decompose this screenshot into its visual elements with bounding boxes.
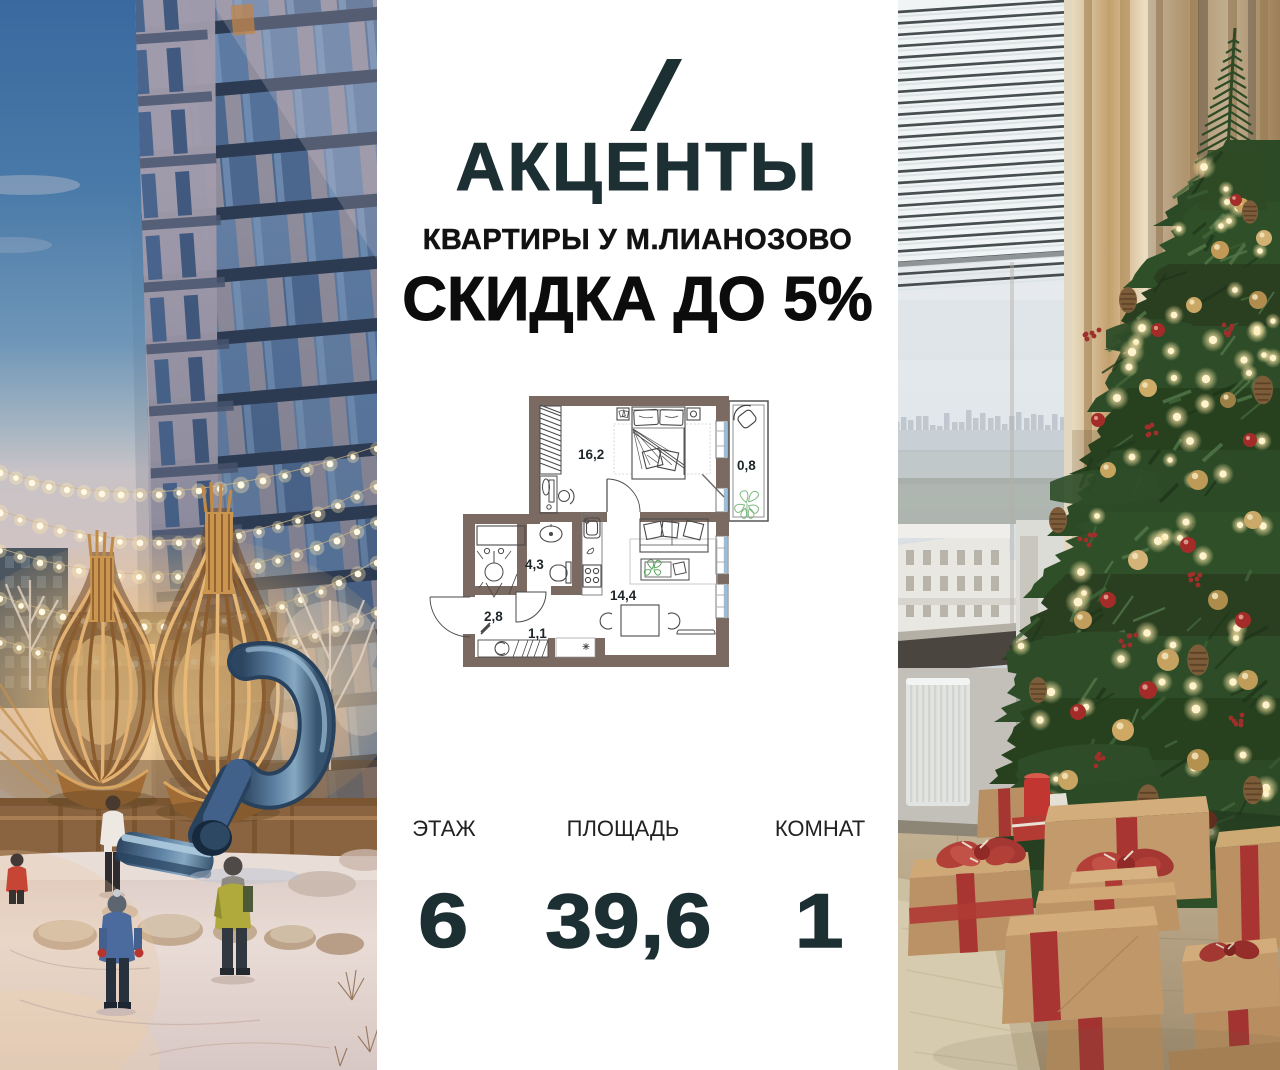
svg-text:1,1: 1,1 — [528, 626, 547, 641]
svg-text:14,4: 14,4 — [610, 588, 637, 603]
svg-text:16,2: 16,2 — [578, 447, 604, 462]
svg-text:4,3: 4,3 — [525, 557, 544, 572]
svg-text:0,8: 0,8 — [737, 458, 756, 473]
svg-text:2,8: 2,8 — [484, 609, 503, 624]
